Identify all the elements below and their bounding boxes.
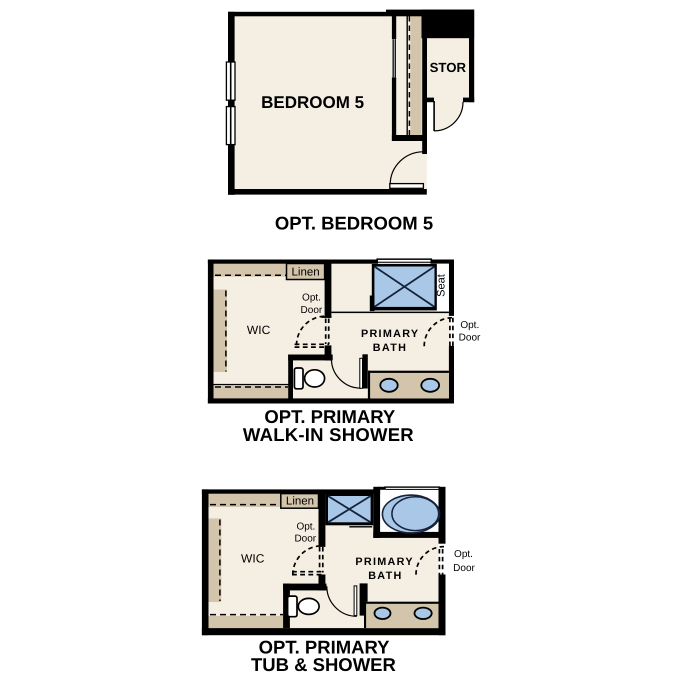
svg-text:STOR: STOR — [430, 60, 467, 75]
svg-text:Opt.: Opt. — [296, 521, 315, 532]
svg-text:Opt.: Opt. — [302, 293, 321, 304]
svg-text:Opt.: Opt. — [460, 320, 479, 331]
svg-text:WALK-IN SHOWER: WALK-IN SHOWER — [243, 424, 414, 445]
svg-text:Seat: Seat — [436, 274, 448, 297]
svg-text:Linen: Linen — [292, 266, 320, 278]
svg-text:PRIMARY: PRIMARY — [355, 556, 414, 568]
svg-text:Door: Door — [301, 305, 323, 316]
svg-text:BEDROOM 5: BEDROOM 5 — [261, 93, 364, 112]
svg-text:BATH: BATH — [373, 342, 407, 354]
svg-text:Linen: Linen — [286, 496, 314, 508]
svg-text:WIC: WIC — [241, 552, 265, 566]
svg-text:TUB & SHOWER: TUB & SHOWER — [251, 654, 396, 675]
svg-text:Door: Door — [453, 563, 475, 574]
svg-text:PRIMARY: PRIMARY — [361, 328, 420, 340]
svg-text:OPT. BEDROOM 5: OPT. BEDROOM 5 — [275, 212, 433, 233]
svg-text:Opt.: Opt. — [454, 549, 473, 560]
svg-text:Door: Door — [294, 534, 316, 545]
svg-text:Door: Door — [459, 333, 481, 344]
svg-text:BATH: BATH — [368, 570, 402, 582]
svg-text:WIC: WIC — [247, 323, 271, 337]
